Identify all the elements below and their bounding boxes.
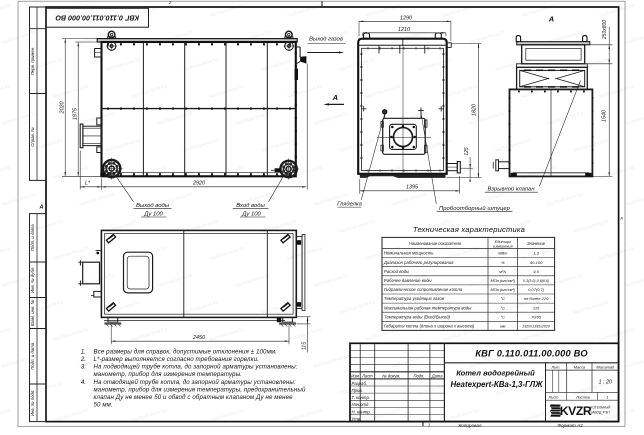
svg-text:250х800: 250х800 [602, 20, 608, 40]
svg-text:0,3(3,0)-0,6(6,0): 0,3(3,0)-0,6(6,0) [523, 279, 549, 283]
svg-text:клапан Ду не менее 50 и обвод: клапан Ду не менее 50 и обвод с обратным… [94, 394, 294, 401]
svg-text:манометр, прибор для измерения: манометр, прибор для измерения температу… [94, 371, 243, 378]
svg-text:ЗАВОД_РЭП: ЗАВОД_РЭП [591, 411, 611, 415]
svg-text:Подп. и дата: Подп. и дата [30, 224, 35, 252]
svg-text:Температура уходящих газов: Температура уходящих газов [384, 296, 445, 301]
svg-text:Температура воды (Вход/Выход): Температура воды (Вход/Выход) [384, 314, 451, 319]
svg-text:°С: °С [501, 305, 506, 310]
svg-text:МПа (кгс/см²): МПа (кгс/см²) [491, 278, 516, 283]
svg-text:На отводящей трубе котла, до з: На отводящей трубе котла, до запорной ар… [94, 379, 296, 386]
svg-text:Масса: Масса [574, 365, 585, 369]
svg-text:м³/ч: м³/ч [499, 269, 506, 274]
svg-text:Гляделка: Гляделка [337, 202, 363, 208]
svg-text:KVZR: KVZR [560, 404, 592, 418]
svg-text:Нач.отд: Нач.отд [352, 402, 370, 407]
svg-text:Дата: Дата [431, 374, 444, 379]
svg-text:Подп. и дата: Подп. и дата [30, 342, 35, 370]
svg-text:Взам. инв. №: Взам. инв. № [30, 299, 35, 326]
svg-text:Справ. №: Справ. № [30, 127, 35, 147]
svg-text:Лист: Лист [361, 374, 373, 379]
svg-text:измерения: измерения [493, 243, 512, 248]
svg-text:70/95: 70/95 [531, 314, 542, 319]
svg-text:Лист: Лист [548, 395, 559, 399]
svg-text:1395: 1395 [406, 185, 419, 191]
svg-text:А: А [548, 15, 554, 24]
svg-text:0,07(0,7): 0,07(0,7) [528, 287, 545, 292]
svg-text:Наименование показателя: Наименование показателя [409, 241, 462, 246]
svg-text:1975: 1975 [72, 107, 78, 120]
svg-text:Диапазон рабочего регулировани: Диапазон рабочего регулирования [383, 260, 454, 265]
svg-text:50 мм.: 50 мм. [94, 401, 113, 408]
svg-text:А: А [39, 205, 44, 211]
svg-text:Значение: Значение [527, 241, 546, 246]
svg-text:2920: 2920 [192, 180, 205, 186]
svg-text:КВГ 0.110.011.00.000 ВО: КВГ 0.110.011.00.000 ВО [55, 14, 139, 23]
svg-text:Масштаб: Масштаб [596, 365, 615, 369]
svg-text:КВГ 0.110.011.00.000 ВО: КВГ 0.110.011.00.000 ВО [475, 348, 588, 358]
svg-text:2920х1395х2020: 2920х1395х2020 [521, 325, 550, 329]
svg-text:КОТЕЛЬНЫЙ: КОТЕЛЬНЫЙ [591, 406, 612, 410]
svg-text:1540: 1540 [602, 110, 608, 122]
svg-text:115: 115 [302, 342, 308, 350]
svg-text:Вход воды: Вход воды [236, 203, 265, 209]
svg-text:А: А [332, 93, 338, 102]
svg-text:Перв. примен.: Перв. примен. [30, 47, 35, 76]
svg-text:1,3: 1,3 [533, 251, 539, 256]
svg-text:Подп.: Подп. [414, 374, 425, 379]
svg-text:На подводящей трубе котла, до: На подводящей трубе котла, до запорной а… [94, 364, 298, 371]
svg-text:Листов: Листов [575, 395, 590, 399]
svg-text:40-100: 40-100 [530, 260, 543, 265]
svg-text:125: 125 [464, 147, 470, 156]
svg-text:4,5: 4,5 [533, 269, 539, 274]
svg-text:1: 1 [606, 395, 608, 399]
svg-text:Пробоотборный штуцер: Пробоотборный штуцер [439, 205, 511, 212]
svg-text:Разраб.: Разраб. [352, 381, 368, 386]
svg-text:не более 220: не более 220 [524, 296, 549, 301]
svg-text:2020: 2020 [59, 102, 65, 115]
svg-text:1 : 20: 1 : 20 [599, 380, 613, 386]
svg-text:Максимальная рабочая температу: Максимальная рабочая температура воды [384, 305, 471, 310]
svg-text:Т. контр.: Т. контр. [352, 395, 371, 400]
svg-text:°С: °С [501, 314, 506, 319]
svg-text:манометр, прибор для измерения: манометр, прибор для измерения температу… [94, 386, 306, 393]
svg-text:Рабочее давление воды: Рабочее давление воды [384, 278, 432, 283]
svg-text:%: % [501, 260, 505, 265]
svg-text:Все размеры для справок, допус: Все размеры для справок, допустимые откл… [94, 349, 278, 356]
svg-text:3.: 3. [81, 364, 86, 371]
svg-text:2.: 2. [80, 356, 86, 363]
svg-text:Номинальная мощность: Номинальная мощность [384, 251, 434, 256]
svg-text:Ду 100: Ду 100 [241, 212, 261, 218]
svg-text:L*-размер выполняется согласно: L*-размер выполняется согласно требовани… [94, 356, 259, 363]
svg-text:Формат А3: Формат А3 [557, 423, 583, 428]
svg-text:Габариты котла (длина х ширина: Габариты котла (длина х ширина х высота) [384, 324, 475, 329]
svg-text:Изм: Изм [351, 374, 359, 379]
svg-text:Расход воды: Расход воды [384, 269, 409, 274]
svg-text:Инв. № дубл.: Инв. № дубл. [30, 267, 35, 293]
svg-text:№ докум.: № докум. [382, 374, 400, 379]
svg-text:Heatexpert-КВа-1,3-ГЛЖ: Heatexpert-КВа-1,3-ГЛЖ [450, 380, 543, 389]
svg-text:А: А [619, 217, 623, 221]
svg-text:МПа (кгс/см²): МПа (кгс/см²) [491, 287, 516, 292]
svg-text:Н. контр.: Н. контр. [352, 409, 371, 414]
svg-text:Выход воды: Выход воды [136, 203, 170, 209]
svg-text:4.: 4. [81, 379, 86, 386]
svg-text:1210: 1210 [398, 27, 410, 33]
svg-text:Выход газов: Выход газов [309, 36, 343, 42]
svg-text:Ду 100: Ду 100 [143, 212, 163, 218]
svg-text:Гидравлическое сопротивление к: Гидравлическое сопротивление котла [384, 287, 463, 292]
svg-text:Утв.: Утв. [352, 416, 362, 421]
svg-text:Копировал: Копировал [459, 423, 482, 428]
svg-text:°С: °С [501, 296, 506, 301]
svg-text:Котел водогрейный: Котел водогрейный [456, 369, 535, 378]
svg-text:Пров.: Пров. [352, 388, 363, 393]
svg-text:Лит.: Лит. [551, 365, 561, 369]
svg-text:мм: мм [500, 324, 506, 329]
svg-text:1290: 1290 [400, 15, 412, 21]
svg-text:Инв. № подл.: Инв. № подл. [30, 389, 35, 416]
svg-text:МВт: МВт [498, 251, 508, 256]
svg-text:115: 115 [533, 305, 540, 310]
svg-text:1820: 1820 [471, 104, 477, 116]
svg-text:2: 2 [168, 0, 172, 5]
svg-text:Взрывной клапан: Взрывной клапан [487, 186, 535, 193]
svg-text:1.: 1. [81, 349, 86, 356]
svg-text:2450: 2450 [192, 335, 205, 341]
svg-text:Техническая характеристика: Техническая характеристика [413, 225, 525, 234]
